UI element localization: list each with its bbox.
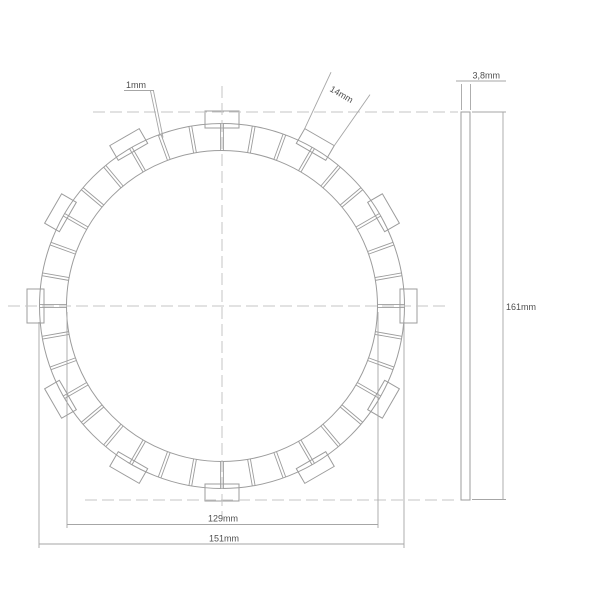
pad-groove-line [342,190,363,207]
pad-groove-line [321,426,338,447]
pad-groove-line [106,426,123,447]
pad-groove-line [323,167,340,188]
dim-label-thickness: 3,8mm [473,71,501,81]
pad-groove-line [340,407,361,424]
pad-groove-line [106,165,123,186]
ext-line-14mm-right [334,95,370,147]
pad-groove-line [342,405,363,422]
clutch-plate-technical-drawing: 1mm 14mm 3,8mm 161mm 129mm 151mm [0,0,600,600]
drive-tab [368,380,400,418]
pad-groove-line [83,188,104,205]
dimension-lines [39,72,506,548]
dim-label-overall-height: 161mm [506,302,536,312]
ext-line-14mm-left [304,72,331,129]
drive-tab [296,129,334,161]
side-view-plate [461,112,470,500]
pad-groove-line [81,190,102,207]
dim-label-tab-width: 14mm [328,84,355,105]
pad-groove-line [104,424,121,445]
dim-label-outer-diameter: 151mm [209,534,239,544]
pad-groove-line [83,407,104,424]
pad-groove-line [321,165,338,186]
plate-section-rect [461,112,470,500]
pad-groove-line [81,405,102,422]
dim-label-inner-diameter: 129mm [208,514,238,524]
drive-tab [45,380,77,418]
pad-groove-line [340,188,361,205]
drive-tab [296,452,334,484]
dim-label-groove-width: 1mm [126,80,146,90]
drive-tab [110,129,148,161]
drive-tab [110,452,148,484]
drive-tab [368,194,400,232]
pad-groove-line [104,167,121,188]
drawing-canvas: 1mm 14mm 3,8mm 161mm 129mm 151mm [0,0,600,600]
pad-groove-line [323,424,340,445]
drive-tab [45,194,77,232]
leader-line-1mm-b [154,91,164,138]
